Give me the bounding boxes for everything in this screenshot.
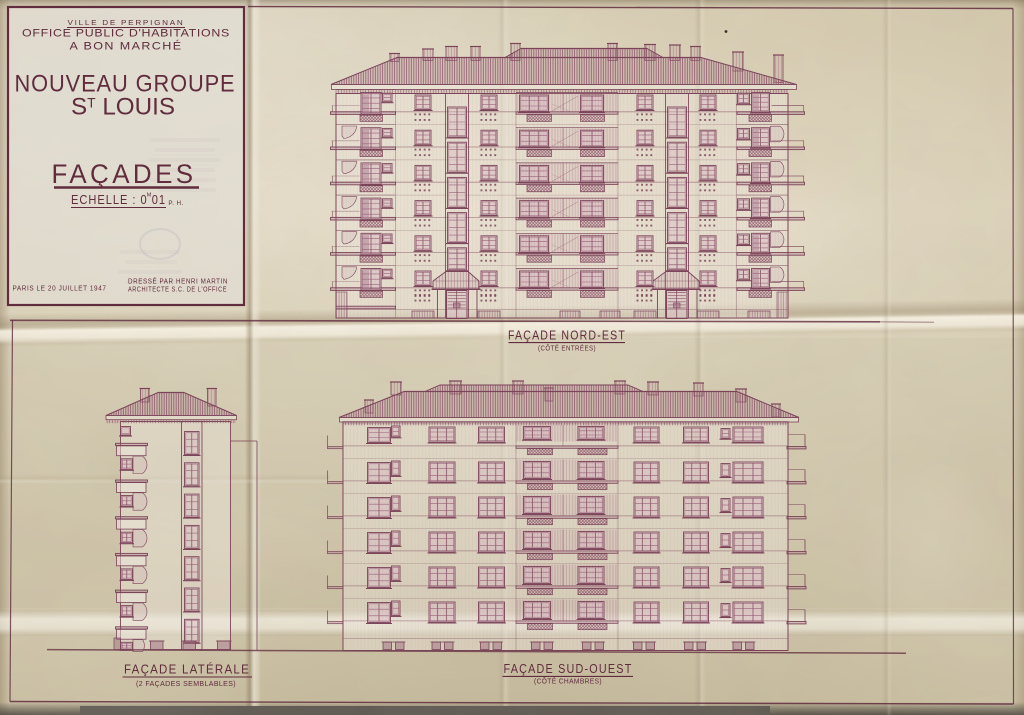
svg-text:(CÔTÉ CHAMBRES): (CÔTÉ CHAMBRES) xyxy=(534,677,602,686)
svg-text:VILLE DE PERPIGNAN: VILLE DE PERPIGNAN xyxy=(68,18,185,27)
svg-text:FAÇADE LATÉRALE: FAÇADE LATÉRALE xyxy=(124,662,250,677)
svg-text:ECHELLE : 0 01: ECHELLE : 0 01 xyxy=(71,193,166,207)
svg-text:A BON MARCHÉ: A BON MARCHÉ xyxy=(70,40,183,53)
svg-text:(CÔTÉ ENTRÉES): (CÔTÉ ENTRÉES) xyxy=(538,344,596,353)
svg-text:(2 FAÇADES SEMBLABLES): (2 FAÇADES SEMBLABLES) xyxy=(136,679,236,688)
svg-text:P. H.: P. H. xyxy=(168,200,183,207)
svg-text:FAÇADE NORD-EST: FAÇADE NORD-EST xyxy=(508,329,626,343)
svg-text:PARIS LE 20 JUILLET 1947: PARIS LE 20 JUILLET 1947 xyxy=(13,284,107,293)
svg-text:M: M xyxy=(147,193,152,199)
svg-text:ST LOUIS: ST LOUIS xyxy=(71,94,175,121)
svg-text:ARCHITECTE S.C. DE L'OFFICE: ARCHITECTE S.C. DE L'OFFICE xyxy=(128,285,227,294)
svg-text:FAÇADE SUD-OUEST: FAÇADE SUD-OUEST xyxy=(504,662,633,676)
svg-text:OFFICE PUBLIC D'HABITATIONS: OFFICE PUBLIC D'HABITATIONS xyxy=(22,28,230,40)
svg-text:FAÇADES: FAÇADES xyxy=(52,159,197,189)
